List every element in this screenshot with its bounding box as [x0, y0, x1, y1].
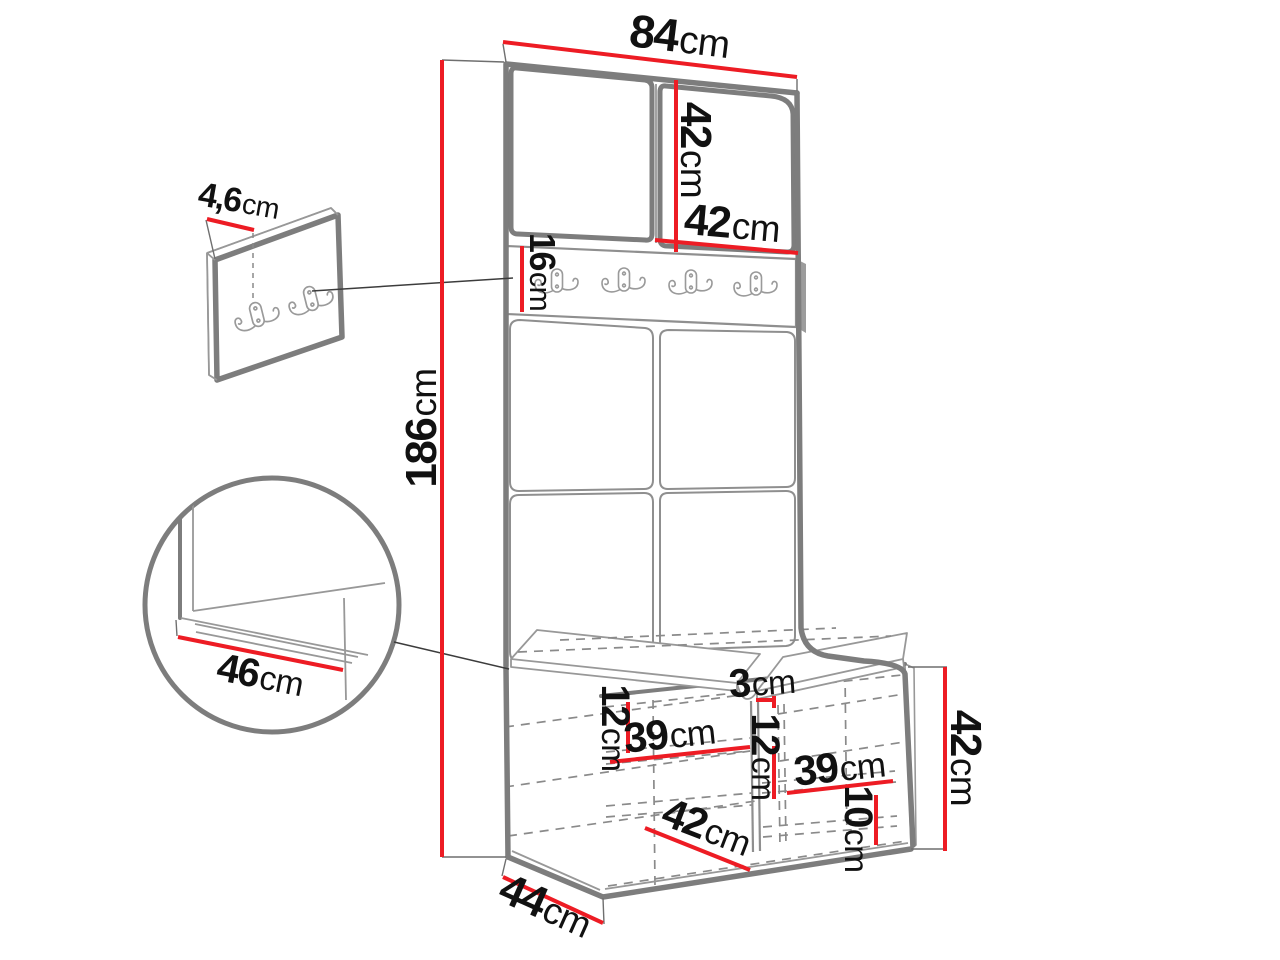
- dim-label-divider-thickness: 3cm: [727, 658, 796, 707]
- bench-left-edge: [506, 668, 508, 857]
- wall-panel-slab: [207, 208, 342, 380]
- furniture-dimension-diagram: 84cm 42cm 42cm 16cm 186cm 4,6cm 46cm 3cm…: [0, 0, 1280, 960]
- padded-panel: [510, 320, 653, 491]
- dim-label-bench-height: 42cm: [941, 710, 990, 806]
- dim-label-hook-rail-height: 16cm: [522, 233, 563, 311]
- wall-hook-panel: [207, 208, 342, 380]
- padded-panel: [660, 491, 795, 650]
- padded-panel: [660, 330, 795, 489]
- dim-label-right-bottom-offset: 10cm: [836, 785, 880, 872]
- dim-label-total-height: 186cm: [397, 368, 446, 487]
- upper-door-left: [511, 68, 652, 240]
- diagram-canvas: 84cm 42cm 42cm 16cm 186cm 4,6cm 46cm 3cm…: [0, 0, 1280, 960]
- dim-label-right-top-offset: 12cm: [743, 713, 787, 800]
- circle-to-bench-connector: [394, 642, 509, 669]
- dim-label-upper-cabinet-height: 42cm: [671, 102, 720, 198]
- tall-unit: [506, 62, 806, 666]
